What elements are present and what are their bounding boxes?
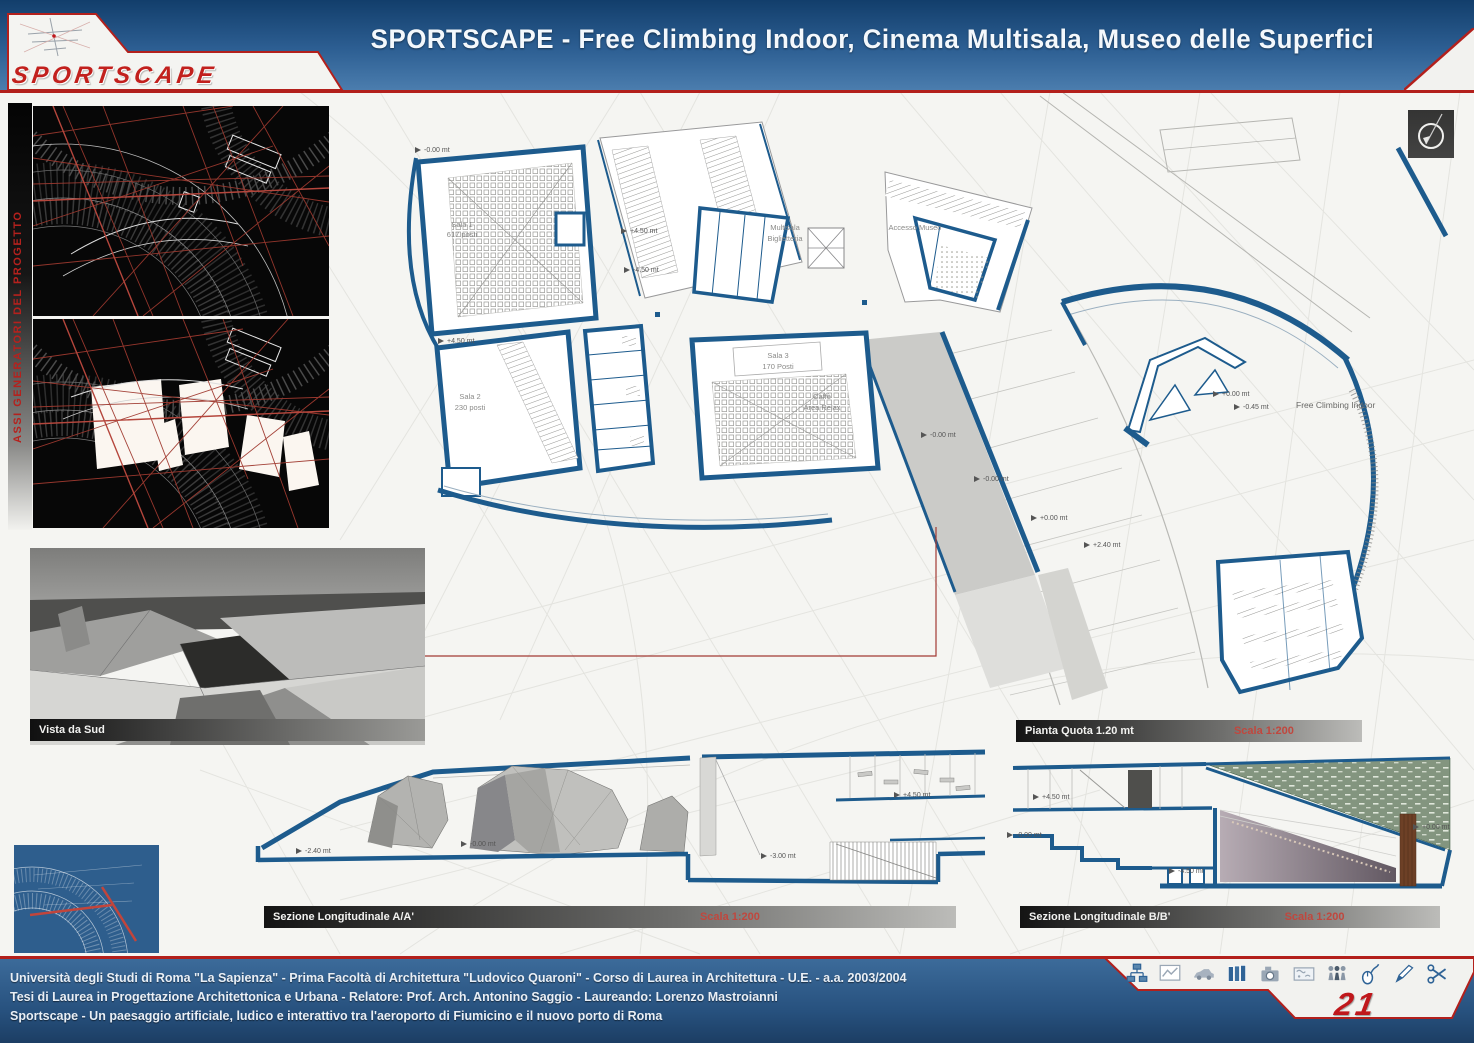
svg-text:617 posti: 617 posti: [447, 230, 478, 239]
section-key-plan: [14, 845, 159, 953]
camera-icon: [1257, 963, 1283, 985]
svg-text:-0.00 mt: -0.00 mt: [930, 432, 956, 439]
svg-text:230 posti: 230 posti: [455, 403, 486, 412]
section-b-scale: Scala 1:200: [1285, 906, 1345, 928]
svg-text:+0.00 mt: +0.00 mt: [1222, 391, 1249, 398]
chart-icon: [1157, 963, 1183, 985]
car-icon: [1191, 963, 1217, 985]
section-b-caption-bar: Sezione Longitudinale B/B' Scala 1:200: [1020, 906, 1440, 928]
svg-text:-0.45 mt: -0.45 mt: [1243, 404, 1269, 411]
svg-text:+4.50 mt: +4.50 mt: [903, 792, 930, 799]
logo-text: SPORTSCAPE: [10, 62, 219, 90]
svg-text:-3.00 mt: -3.00 mt: [770, 853, 796, 860]
footer-line-3: Sportscape - Un paesaggio artificiale, l…: [10, 1007, 907, 1026]
books-icon: [1224, 963, 1250, 985]
svg-text:+4.50 mt: +4.50 mt: [630, 228, 657, 235]
map-icon: [1291, 963, 1317, 985]
thesis-board: Sala 1 617 posti Sala 2 230 posti Sala 3…: [0, 0, 1474, 1043]
section-b-drawing: +4.50 mt -0.00 mt -4.50 mt +0.00 mt: [1007, 758, 1450, 886]
svg-text:+4.50 mt: +4.50 mt: [1042, 794, 1069, 801]
svg-text:Sala 3: Sala 3: [767, 351, 788, 360]
svg-text:-0.00 mt: -0.00 mt: [470, 841, 496, 848]
page-number: 21: [1297, 986, 1416, 1023]
svg-text:170 Posti: 170 Posti: [762, 362, 794, 371]
section-a-scale: Scala 1:200: [700, 906, 760, 928]
render-caption-bar: Vista da Sud: [30, 719, 425, 741]
svg-text:+4.50 mt: +4.50 mt: [447, 338, 474, 345]
section-a-caption-bar: Sezione Longitudinale A/A' Scala 1:200: [264, 906, 956, 928]
axes-study-figure-2: [33, 319, 329, 528]
header-corner-wedge: [1404, 28, 1474, 90]
svg-text:-0.00 mt: -0.00 mt: [424, 147, 450, 154]
svg-text:+0.00 mt: +0.00 mt: [1422, 824, 1449, 831]
footer-line-2: Tesi di Laurea in Progettazione Architet…: [10, 988, 907, 1007]
scissors-icon: [1424, 963, 1450, 985]
axes-study-figure-1: [33, 106, 329, 316]
svg-text:+2.40 mt: +2.40 mt: [1093, 542, 1120, 549]
svg-text:-4.50 mt: -4.50 mt: [1178, 868, 1204, 875]
footer-icon-row: [1124, 960, 1450, 988]
svg-text:Sala 1: Sala 1: [451, 220, 472, 229]
render-caption: Vista da Sud: [39, 719, 105, 741]
plan-caption: Pianta Quota 1.20 mt: [1025, 720, 1134, 742]
section-b-caption: Sezione Longitudinale B/B': [1029, 906, 1170, 928]
side-strip: ASSI GENERATORI DEL PROGETTO: [8, 103, 32, 530]
section-a-drawing: -2.40 mt -0.00 mt -3.00 mt +4.50 mt: [258, 752, 985, 882]
svg-text:-2.40 mt: -2.40 mt: [305, 848, 331, 855]
plan-scale: Scala 1:200: [1234, 720, 1294, 742]
render-vista-da-sud: [30, 548, 425, 745]
pen-icon: [1391, 963, 1417, 985]
cinema-lower-block: [437, 326, 878, 527]
board-title: SPORTSCAPE - Free Climbing Indoor, Cinem…: [371, 24, 1364, 55]
svg-text:Caffè: Caffè: [813, 392, 831, 401]
svg-text:-0.00 mt: -0.00 mt: [1016, 832, 1042, 839]
side-strip-label: ASSI GENERATORI DEL PROGETTO: [12, 113, 24, 443]
svg-text:-0.00 mt: -0.00 mt: [983, 476, 1009, 483]
logo: SPORTSCAPE: [0, 4, 352, 92]
mouse-icon: [1357, 963, 1383, 985]
svg-text:Free Climbing Indoor: Free Climbing Indoor: [1296, 400, 1376, 410]
svg-text:Biglietteria: Biglietteria: [767, 234, 803, 243]
svg-text:Sala 2: Sala 2: [459, 392, 480, 401]
people-icon: [1324, 963, 1350, 985]
north-arrow-icon: [1408, 110, 1454, 158]
svg-text:Area Relax: Area Relax: [803, 403, 840, 412]
svg-text:-4.50 mt: -4.50 mt: [633, 267, 659, 274]
museum-access-building: [885, 172, 1032, 312]
svg-text:+0.00 mt: +0.00 mt: [1040, 515, 1067, 522]
svg-text:Accesso Museo: Accesso Museo: [889, 223, 942, 232]
svg-text:Multisala: Multisala: [770, 223, 800, 232]
plan-caption-bar: Pianta Quota 1.20 mt Scala 1:200: [1016, 720, 1362, 742]
free-climbing-building: [1062, 286, 1375, 692]
network-icon: [1124, 963, 1150, 985]
footer-line-1: Università degli Studi di Roma "La Sapie…: [10, 969, 907, 988]
section-a-caption: Sezione Longitudinale A/A': [273, 906, 414, 928]
